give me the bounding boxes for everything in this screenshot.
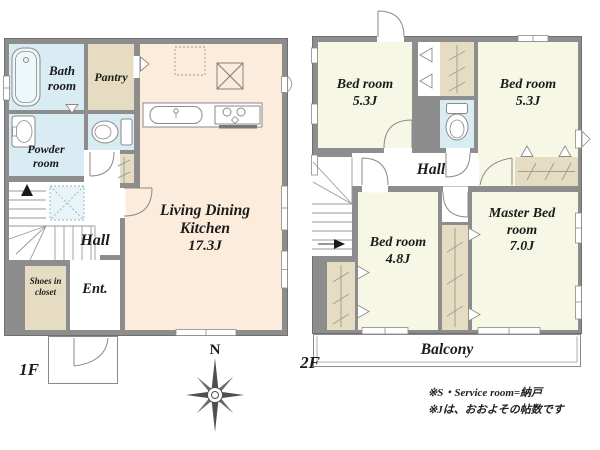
footnote-line-1: ※S・Service room=納戸: [428, 385, 584, 402]
bedroom2-area: 5.3J: [516, 94, 541, 111]
ldk-label: Living Dining Kitchen 17.3J: [140, 194, 270, 264]
room-toilet-2f: [440, 100, 474, 148]
entrance-label: Ent.: [73, 278, 117, 302]
wall-stub-c: [120, 183, 140, 188]
closet-front-strip: [418, 42, 440, 96]
bath-room-label: Bath room: [38, 58, 86, 98]
stairs-1f-zone: [9, 182, 46, 260]
room-toilet-1f: [88, 114, 134, 150]
closet-master: [442, 225, 468, 330]
shoes-closet-label: Shoes in closet: [23, 272, 68, 302]
bedroom3-area: 4.8J: [386, 252, 411, 269]
master-bedroom-label: Master Bed room 7.0J: [487, 196, 557, 266]
entrance-porch: [48, 336, 118, 384]
stairs-2f-zone: [312, 157, 352, 256]
master-area: 7.0J: [510, 239, 535, 256]
ldk-area: 17.3J: [188, 238, 222, 256]
bedroom2-name: Bed room: [500, 77, 556, 94]
compass-north-label: N: [203, 342, 227, 360]
pantry-label: Pantry: [85, 67, 137, 87]
master-name: Master Bed room: [487, 206, 557, 239]
floor2-tag: 2F: [292, 350, 328, 376]
footnotes: ※S・Service room=納戸 ※Jは、おおよその帖数です: [428, 385, 584, 427]
closet-bedroom2: [515, 157, 578, 186]
hall-2f-label: Hall: [402, 156, 460, 184]
footnote-line-2: ※Jは、おおよその帖数です: [428, 402, 584, 419]
hall-upper-strip: [84, 150, 120, 182]
room-ldk-extension: [125, 188, 140, 330]
powder-room-label: Powder room: [15, 137, 77, 175]
floorplan-canvas: Bath room Pantry Powder room Hall Shoes …: [0, 0, 600, 450]
bedroom3-name: Bed room: [370, 235, 426, 252]
balcony-label: Balcony: [313, 334, 581, 367]
hall-1f-label: Hall: [68, 228, 122, 254]
floor1-tag: 1F: [10, 356, 48, 384]
bedroom2-label: Bed room 5.3J: [479, 68, 577, 120]
wall-stub-b: [100, 255, 120, 260]
bedroom3-label: Bed room 4.8J: [355, 226, 441, 278]
closet-top-2f: [440, 42, 474, 96]
bedroom1-area: 5.3J: [353, 94, 378, 111]
master-entry: [442, 192, 468, 222]
ldk-name: Living Dining Kitchen: [140, 202, 270, 239]
bedroom1-label: Bed room 5.3J: [321, 68, 409, 120]
room-ldk: [140, 44, 282, 330]
closet-bedroom3: [327, 262, 355, 330]
bedroom1-name: Bed room: [337, 77, 393, 94]
compass-icon: [178, 358, 252, 432]
